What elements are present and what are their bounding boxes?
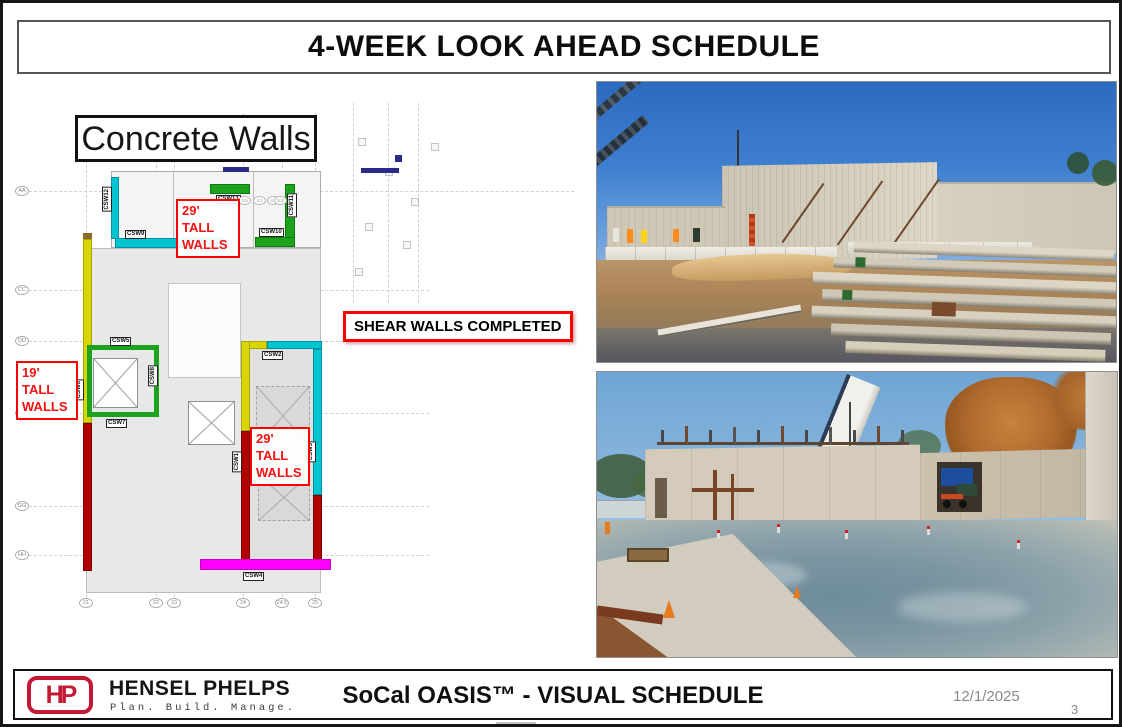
formwork-post <box>685 426 688 444</box>
grid-bubble: HH <box>15 550 29 560</box>
wall-label: CSW8 <box>148 365 158 386</box>
wall-label: CSW10 <box>259 228 284 237</box>
wall-label: CSW12 <box>102 187 112 212</box>
wall-csw13 <box>210 184 250 194</box>
left-wall-face <box>645 445 920 528</box>
wall-tower-yellow <box>241 341 250 431</box>
footer-tagline: Plan. Build. Manage. <box>110 702 296 714</box>
slide-title: 4-WEEK LOOK AHEAD SCHEDULE <box>17 20 1111 74</box>
formwork-post <box>757 430 760 444</box>
traffic-cone <box>793 586 801 598</box>
wall-csw3 <box>313 349 322 495</box>
scrollbar-fragment[interactable] <box>496 722 536 727</box>
interior-rooms <box>168 283 241 378</box>
grid-bubble: AA <box>15 186 29 196</box>
safety-post <box>605 522 610 534</box>
lumber-brace-vertical <box>713 470 717 522</box>
photo-slab-and-walls <box>596 371 1118 658</box>
formwork-post <box>805 430 808 444</box>
wall-csw6 <box>83 423 92 571</box>
grid-bubble: 21 <box>79 598 93 608</box>
grid-bubble: CC <box>15 285 29 295</box>
hensel-phelps-logo: HP <box>27 676 93 714</box>
annotation-29-tall-walls-bottom: 29' TALL WALLS <box>250 427 310 486</box>
plan-detail <box>411 198 419 206</box>
grid-line <box>388 103 389 303</box>
rust-block <box>932 302 956 317</box>
steel-detail <box>395 155 402 162</box>
wall-line <box>253 171 254 248</box>
steel-beam <box>223 167 249 172</box>
beam-end-green <box>855 257 865 267</box>
concrete-walls-plan: CSW12 CSW9 CSW13 CSW11 CSW10 CSW5 CSW8 C… <box>13 83 591 665</box>
truck-bumper <box>941 494 963 499</box>
survey-stake <box>717 530 720 539</box>
wall-line <box>173 171 174 248</box>
wall-csw4 <box>200 559 331 570</box>
wall-label: CSW4 <box>243 572 264 581</box>
plan-detail <box>355 268 363 276</box>
worker <box>641 230 647 243</box>
wall-csw10 <box>255 237 295 247</box>
photo-tiltup-walls-exterior <box>596 81 1117 363</box>
annotation-19-tall-walls: 19' TALL WALLS <box>16 361 78 420</box>
shaft-xbox <box>188 401 235 445</box>
plan-detail <box>403 241 411 249</box>
formwork-post <box>781 426 784 444</box>
truck-wheel <box>959 500 967 508</box>
wall-top-formwork <box>657 430 909 444</box>
formed-pit <box>627 548 669 562</box>
grid-bubble: 24 <box>236 598 250 608</box>
survey-stake <box>1017 540 1020 549</box>
traffic-cone <box>663 600 675 618</box>
plan-detail <box>365 223 373 231</box>
footer-company-name: HENSEL PHELPS <box>109 677 290 701</box>
left-wall-panel <box>607 206 725 252</box>
tree <box>1092 160 1117 186</box>
annotation-shear-walls-completed: SHEAR WALLS COMPLETED <box>343 311 573 342</box>
formwork-post <box>877 426 880 444</box>
wall-csw12 <box>111 177 119 239</box>
wall-label: CSW9 <box>125 230 146 239</box>
formwork-post <box>733 427 736 444</box>
plan-title: Concrete Walls <box>75 115 317 162</box>
grid-bubble: 4.2 <box>253 196 266 205</box>
lumber-brace-vertical <box>731 474 734 520</box>
plan-detail <box>431 143 439 151</box>
wall-csw2-cyan <box>267 341 322 349</box>
grid-bubble: GG <box>15 501 29 511</box>
grid-bubble: 23 <box>167 598 181 608</box>
formwork-post <box>829 427 832 444</box>
survey-stake <box>927 526 930 535</box>
formwork-post <box>709 430 712 444</box>
formwork-post <box>661 430 664 444</box>
beam-end-green <box>842 290 852 300</box>
grid-bubble: 22 <box>149 598 163 608</box>
beam <box>845 341 1105 362</box>
grid-bubble: 25 <box>308 598 322 608</box>
survey-stake <box>777 524 780 533</box>
slide: 4-WEEK LOOK AHEAD SCHEDULE <box>0 0 1122 727</box>
grid-bubble: DD <box>15 336 29 346</box>
wall-label: CSW2 <box>262 351 283 360</box>
wall-label: CSW5 <box>110 337 131 346</box>
footer-project-title: SoCal OASIS™ - VISUAL SCHEDULE <box>303 682 803 710</box>
wall-label: CSW11 <box>287 193 297 217</box>
plan-detail <box>358 138 366 146</box>
worker <box>613 228 619 242</box>
formwork-post <box>853 430 856 444</box>
survey-stake <box>845 530 848 539</box>
wall-csw1 <box>241 431 250 561</box>
wall-label: CSW7 <box>106 419 127 428</box>
beam-stack <box>810 240 1117 363</box>
worker <box>693 228 700 242</box>
grid-bubble: 24.5 <box>275 598 289 608</box>
footer-page-number: 3 <box>1071 702 1078 717</box>
lumber-brace-horizontal <box>692 488 754 492</box>
slab-sheen <box>897 592 1027 622</box>
wall-label: CSW1 <box>232 451 242 472</box>
grid-line <box>353 103 354 303</box>
wall-tower-red <box>313 495 322 561</box>
truck-wheel <box>943 500 951 508</box>
worker <box>627 229 633 243</box>
steel-beam <box>361 168 399 173</box>
formwork-post <box>901 430 904 444</box>
annotation-29-tall-walls-top: 29' TALL WALLS <box>176 199 240 258</box>
wall-door-opening <box>655 478 667 518</box>
grid-bubble: 5.2 <box>274 196 287 205</box>
logo-hp-text: HP <box>46 681 75 710</box>
orange-ladder <box>749 214 755 246</box>
footer-date: 12/1/2025 <box>953 688 1053 705</box>
worker <box>673 229 679 242</box>
tree <box>1067 152 1089 174</box>
